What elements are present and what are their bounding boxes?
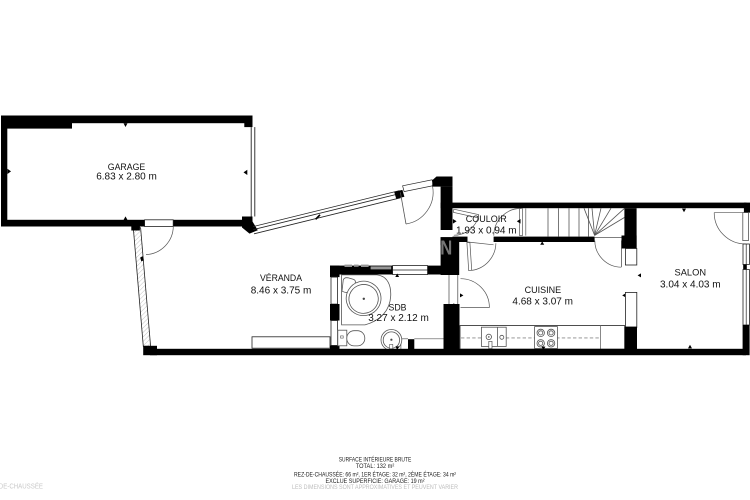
- svg-text:REZ-DE-CHAUSSÉE: REZ-DE-CHAUSSÉE: [0, 482, 43, 491]
- svg-text:1.93 x 0.94 m: 1.93 x 0.94 m: [456, 226, 517, 237]
- svg-text:LES DIMENSIONS SONT APPROXIMAT: LES DIMENSIONS SONT APPROXIMATIVES ET PE…: [292, 485, 459, 491]
- svg-text:EXCLUE SUPERFICIE: GARAGE: 19: EXCLUE SUPERFICIE: GARAGE: 19 m²: [326, 479, 425, 485]
- svg-text:3.27 x 2.12 m: 3.27 x 2.12 m: [368, 313, 429, 324]
- svg-text:COULOIR: COULOIR: [466, 214, 507, 225]
- svg-text:CUISINE: CUISINE: [525, 285, 562, 296]
- svg-text:SDB: SDB: [389, 303, 407, 314]
- svg-text:SURFACE INTÉRIEURE BRUTE: SURFACE INTÉRIEURE BRUTE: [339, 457, 412, 464]
- svg-text:SALON: SALON: [675, 268, 707, 279]
- svg-text:REZ-DE-CHAUSSÉE: 66 m², 1ER ÉT: REZ-DE-CHAUSSÉE: 66 m², 1ER ÉTAGE: 32 m²…: [294, 472, 456, 479]
- svg-text:N: N: [440, 237, 452, 259]
- svg-text:8.46 x 3.75 m: 8.46 x 3.75 m: [251, 286, 312, 297]
- svg-text:3.04 x 4.03 m: 3.04 x 4.03 m: [660, 279, 721, 290]
- svg-text:6.83 x 2.80 m: 6.83 x 2.80 m: [96, 171, 157, 182]
- svg-text:VÉRANDA: VÉRANDA: [260, 273, 303, 284]
- svg-text:TOTAL: 132 m²: TOTAL: 132 m²: [356, 464, 395, 470]
- svg-text:4.68 x 3.07 m: 4.68 x 3.07 m: [512, 296, 573, 307]
